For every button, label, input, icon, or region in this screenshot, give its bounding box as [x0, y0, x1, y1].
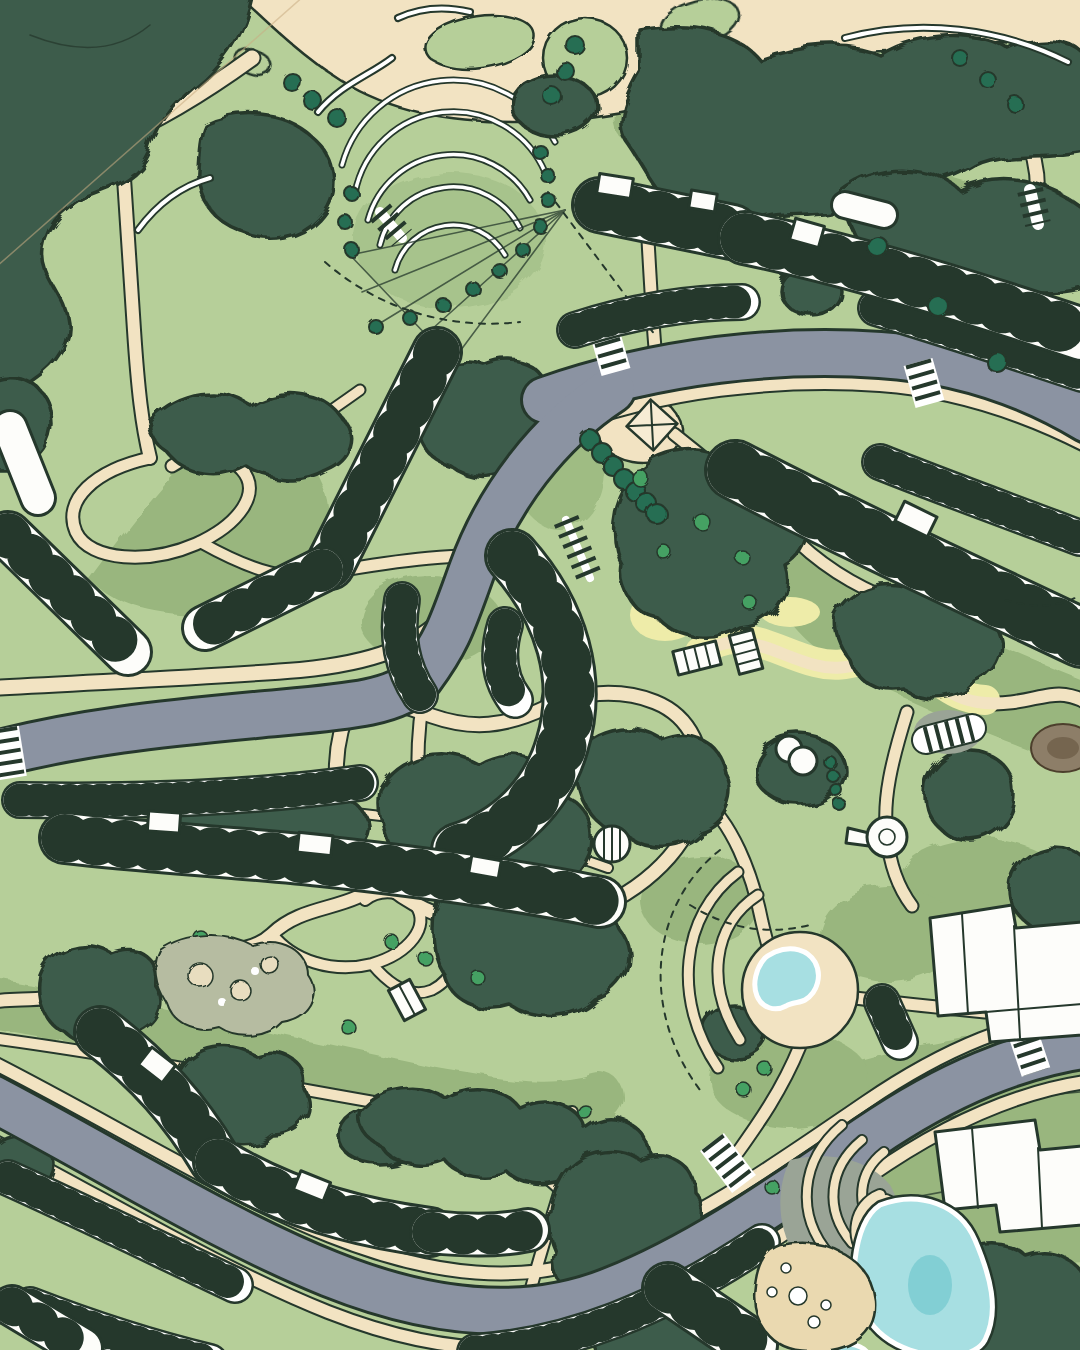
masterplan-svg	[0, 0, 1080, 1350]
dome-pavilion-ribbed	[594, 826, 630, 862]
pond	[755, 949, 819, 1009]
rock-garden	[155, 935, 313, 1036]
hillside-steps	[1030, 190, 1038, 224]
site-plan-map	[0, 0, 1080, 1350]
